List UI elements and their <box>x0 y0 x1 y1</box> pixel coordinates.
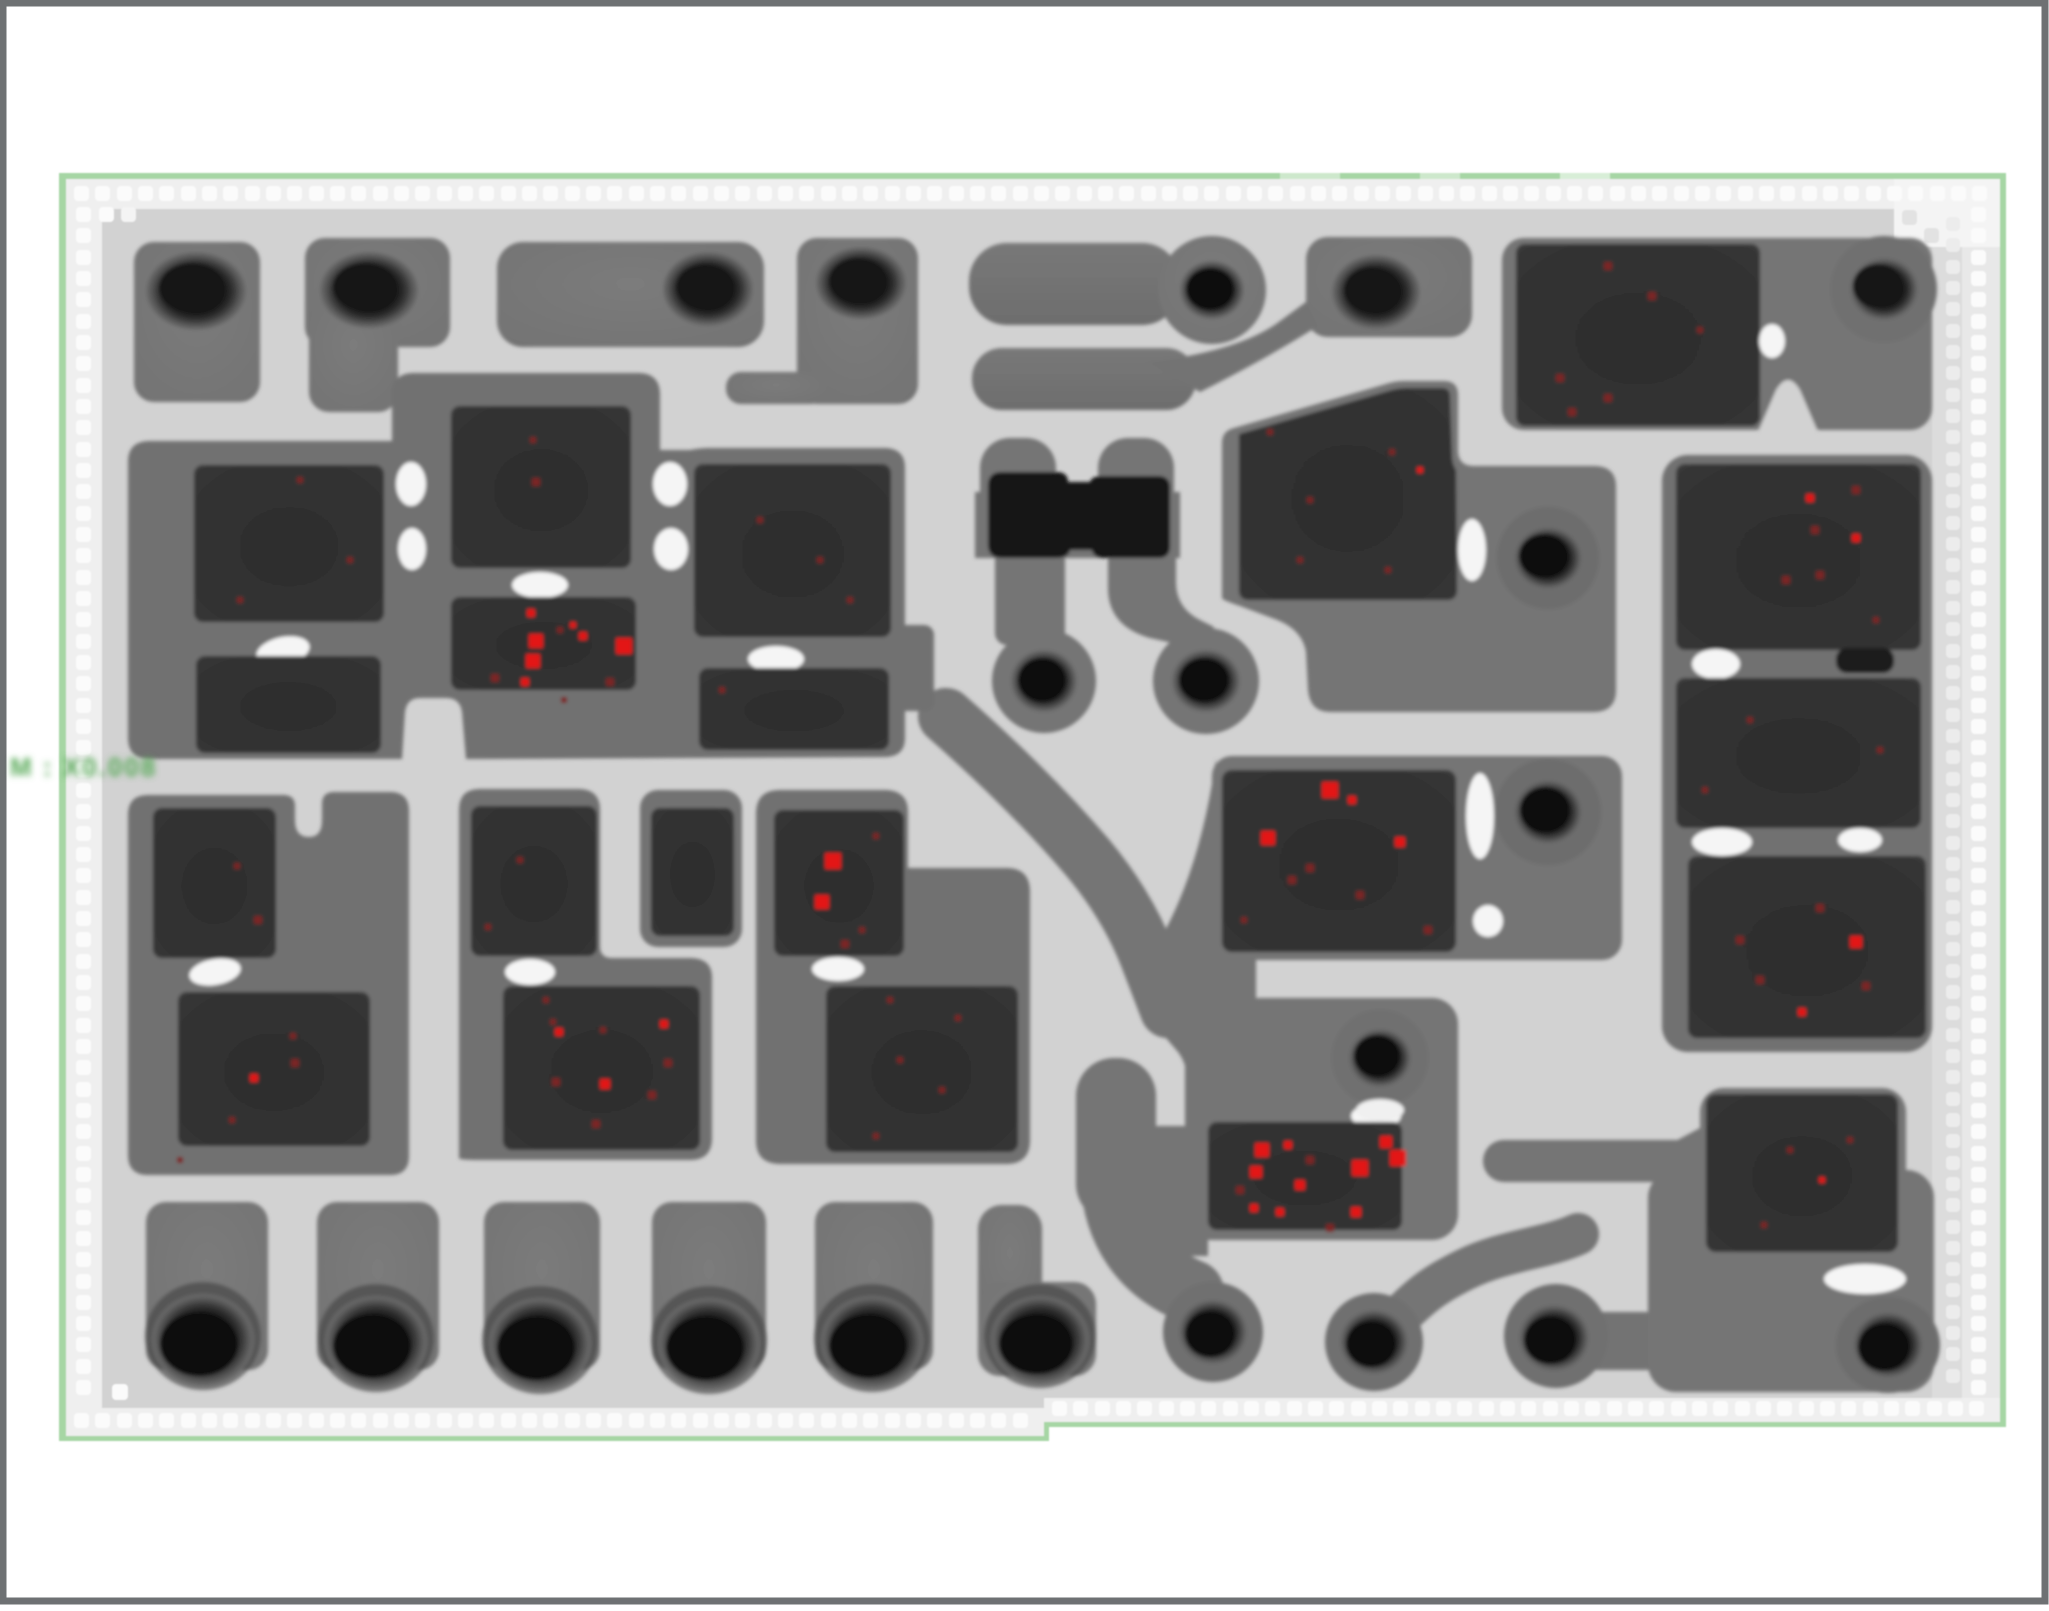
svg-text:M : X0.008: M : X0.008 <box>10 752 157 782</box>
